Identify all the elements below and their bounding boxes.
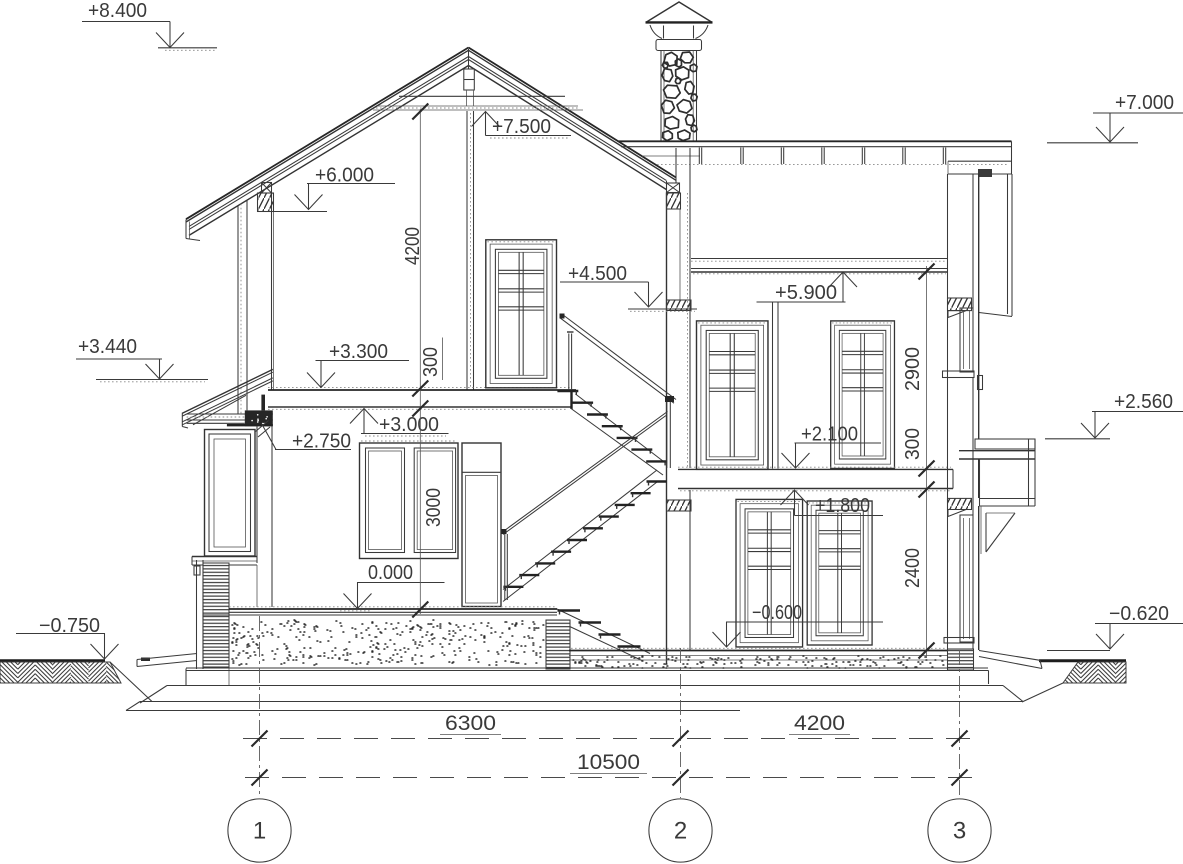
svg-text:1: 1 (253, 818, 266, 845)
svg-text:−0.600: −0.600 (752, 602, 802, 624)
svg-text:10500: 10500 (577, 751, 640, 774)
svg-text:6300: 6300 (445, 712, 496, 735)
svg-text:2400: 2400 (902, 548, 924, 588)
svg-text:−0.620: −0.620 (1109, 603, 1169, 625)
svg-text:+2.100: +2.100 (801, 424, 858, 446)
svg-text:+3.440: +3.440 (78, 336, 137, 358)
svg-text:3: 3 (953, 818, 966, 845)
svg-text:+8.400: +8.400 (88, 0, 147, 22)
svg-text:+3.000: +3.000 (379, 414, 439, 436)
svg-text:+2.560: +2.560 (1114, 391, 1173, 413)
svg-text:300: 300 (902, 428, 924, 460)
svg-text:4200: 4200 (794, 712, 845, 735)
svg-text:0.000: 0.000 (368, 562, 413, 584)
svg-text:2900: 2900 (902, 347, 924, 391)
svg-text:+1.800: +1.800 (815, 495, 870, 517)
svg-text:+5.900: +5.900 (775, 282, 837, 304)
svg-text:4200: 4200 (402, 227, 424, 265)
svg-text:+3.300: +3.300 (329, 341, 388, 363)
svg-text:300: 300 (420, 347, 442, 377)
svg-text:+7.000: +7.000 (1115, 92, 1174, 114)
svg-text:+7.500: +7.500 (492, 116, 551, 138)
svg-text:2: 2 (674, 818, 687, 845)
svg-text:3000: 3000 (423, 488, 445, 527)
